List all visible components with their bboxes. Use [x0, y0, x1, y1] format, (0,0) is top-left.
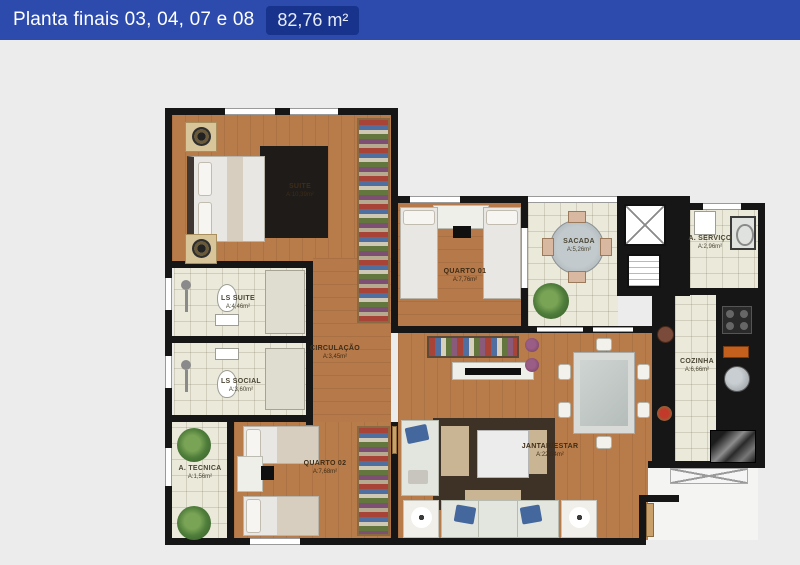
wall-segment [758, 203, 765, 468]
room-name: SUITE [286, 183, 314, 192]
room-name: QUARTO 01 [444, 268, 487, 277]
room-area: A:2,96m² [688, 244, 731, 252]
pillow [486, 210, 518, 225]
room-label-circulacao: CIRCULAÇÃO A:3,45m² [310, 345, 360, 361]
room-label-jantar-estar: JANTAR/ESTAR A:22,54m² [522, 443, 579, 459]
desk-chair [453, 226, 471, 238]
floorplan-image: SUITE A:10,39m² QUARTO 01 A:7,76m² SACAD… [165, 108, 765, 548]
wall-segment [391, 326, 531, 333]
dining-chair [558, 364, 571, 380]
dining-chair [558, 402, 571, 418]
wardrobe-clothes [357, 426, 390, 536]
sofa-seam [478, 501, 479, 537]
page: { "header": { "title": "Planta finais 03… [0, 0, 800, 565]
plant [177, 428, 211, 462]
potted-plant [525, 358, 539, 372]
shower-head-icon [181, 360, 191, 370]
shower-head-icon [181, 280, 191, 290]
room-area: A:1,56m² [178, 474, 221, 482]
dining-chair [596, 436, 612, 449]
window-sacada [528, 196, 617, 203]
room-area: A:6,66m² [680, 367, 714, 375]
stairs-icon [627, 254, 661, 288]
room-name: COZINHA [680, 358, 714, 367]
pillow [198, 162, 212, 196]
room-area: A:22,54m² [522, 452, 579, 460]
room-label-a-tecnica: A. TECNICA A:1,56m² [178, 465, 221, 481]
wall-segment [165, 415, 313, 422]
rug-pattern [441, 426, 469, 476]
table-lamp [411, 507, 432, 528]
room-label-ls-suite: LS SUITE A:4,46m² [221, 295, 255, 311]
bookshelf [427, 336, 519, 358]
window [250, 538, 300, 545]
kitchen-counter-left [654, 295, 675, 465]
pillow [198, 202, 212, 236]
glass-panel [710, 430, 756, 463]
window [410, 196, 460, 203]
wall-segment [165, 108, 398, 115]
entry-door-hatch [670, 468, 748, 484]
title-bar: Planta finais 03, 04, 07 e 08 82,76 m² [0, 0, 800, 40]
room-area: A:3,60m² [221, 387, 261, 395]
window [703, 203, 741, 210]
sliding-door [537, 327, 583, 332]
kitchen-item [657, 326, 674, 343]
dining-table-glass [580, 360, 628, 426]
room-label-cozinha: COZINHA A:6,66m² [680, 358, 714, 374]
blanket [277, 427, 318, 463]
room-name: LS SUITE [221, 295, 255, 304]
wall-segment [165, 108, 172, 270]
sink [215, 314, 239, 326]
gray-pillow [408, 470, 428, 484]
wall-segment [391, 538, 646, 545]
wall-segment [227, 422, 234, 545]
quarto02-door [392, 426, 397, 454]
elevator-icon [624, 204, 666, 246]
desk [237, 456, 263, 492]
room-area: A:7,68m² [304, 469, 347, 477]
wall-segment [172, 336, 306, 343]
room-name: LS SOCIAL [221, 378, 261, 387]
sliding-door [593, 327, 633, 332]
service-door [646, 503, 654, 537]
plant [177, 506, 211, 540]
room-area: A:7,76m² [444, 277, 487, 285]
lamp [192, 127, 211, 146]
lamp [192, 239, 211, 258]
window [165, 278, 172, 310]
table-lamp [569, 507, 590, 528]
burner [740, 322, 748, 330]
room-label-ls-social: LS SOCIAL A:3,60m² [221, 378, 261, 394]
fruit-bowl [657, 406, 672, 421]
wardrobe-clothes [357, 118, 390, 323]
potted-plant [525, 338, 539, 352]
page-title: Planta finais 03, 04, 07 e 08 [13, 9, 254, 31]
blanket [277, 497, 318, 535]
room-area: A:4,46m² [221, 304, 255, 312]
chair [542, 238, 554, 256]
room-label-suite: SUITE A:10,39m² [286, 183, 314, 199]
room-name: A. TECNICA [178, 465, 221, 474]
plant [533, 283, 569, 319]
chair [568, 271, 586, 283]
blue-pillow [454, 504, 477, 524]
dining-chair [596, 338, 612, 351]
area-badge: 82,76 m² [266, 6, 359, 35]
sofa-seam [517, 501, 518, 537]
window [165, 448, 172, 486]
sink-basin [724, 366, 750, 392]
window [521, 228, 528, 288]
chair [568, 211, 586, 223]
room-label-a-servico: A. SERVIÇO A:2,96m² [688, 235, 731, 251]
shower-box [265, 348, 305, 410]
window [290, 108, 338, 115]
burner [726, 310, 734, 318]
washing-machine [730, 216, 756, 250]
room-area: A:3,45m² [310, 354, 360, 362]
room-label-quarto02: QUARTO 02 A:7,68m² [304, 460, 347, 476]
blanket [227, 157, 243, 241]
wall-segment [391, 108, 398, 203]
room-name: A. SERVIÇO [688, 235, 731, 244]
room-name: CIRCULAÇÃO [310, 345, 360, 354]
shower-pipe [185, 290, 188, 312]
burner [726, 322, 734, 330]
room-name: JANTAR/ESTAR [522, 443, 579, 452]
burner [740, 310, 748, 318]
window [225, 108, 275, 115]
pillow [403, 210, 435, 225]
window [165, 356, 172, 388]
room-label-sacada: SACADA A:5,26m² [563, 238, 595, 254]
room-area: A:10,39m² [286, 192, 314, 200]
pillow [246, 499, 261, 533]
wall-segment [306, 261, 313, 425]
wall-segment [391, 196, 398, 333]
tv [465, 368, 521, 375]
blue-pillow [520, 504, 543, 524]
room-label-quarto01: QUARTO 01 A:7,76m² [444, 268, 487, 284]
dining-chair [637, 364, 650, 380]
laundry-tank [694, 211, 716, 235]
room-name: QUARTO 02 [304, 460, 347, 469]
dining-chair [637, 402, 650, 418]
kitchen-item [723, 346, 749, 358]
room-name: SACADA [563, 238, 595, 247]
shower-pipe [185, 370, 188, 392]
chair [600, 238, 612, 256]
room-area: A:5,26m² [563, 247, 595, 255]
sink [215, 348, 239, 360]
desk-chair [261, 466, 274, 480]
wall-segment [639, 498, 646, 545]
shower-box [265, 270, 305, 334]
wall-segment [639, 495, 679, 502]
